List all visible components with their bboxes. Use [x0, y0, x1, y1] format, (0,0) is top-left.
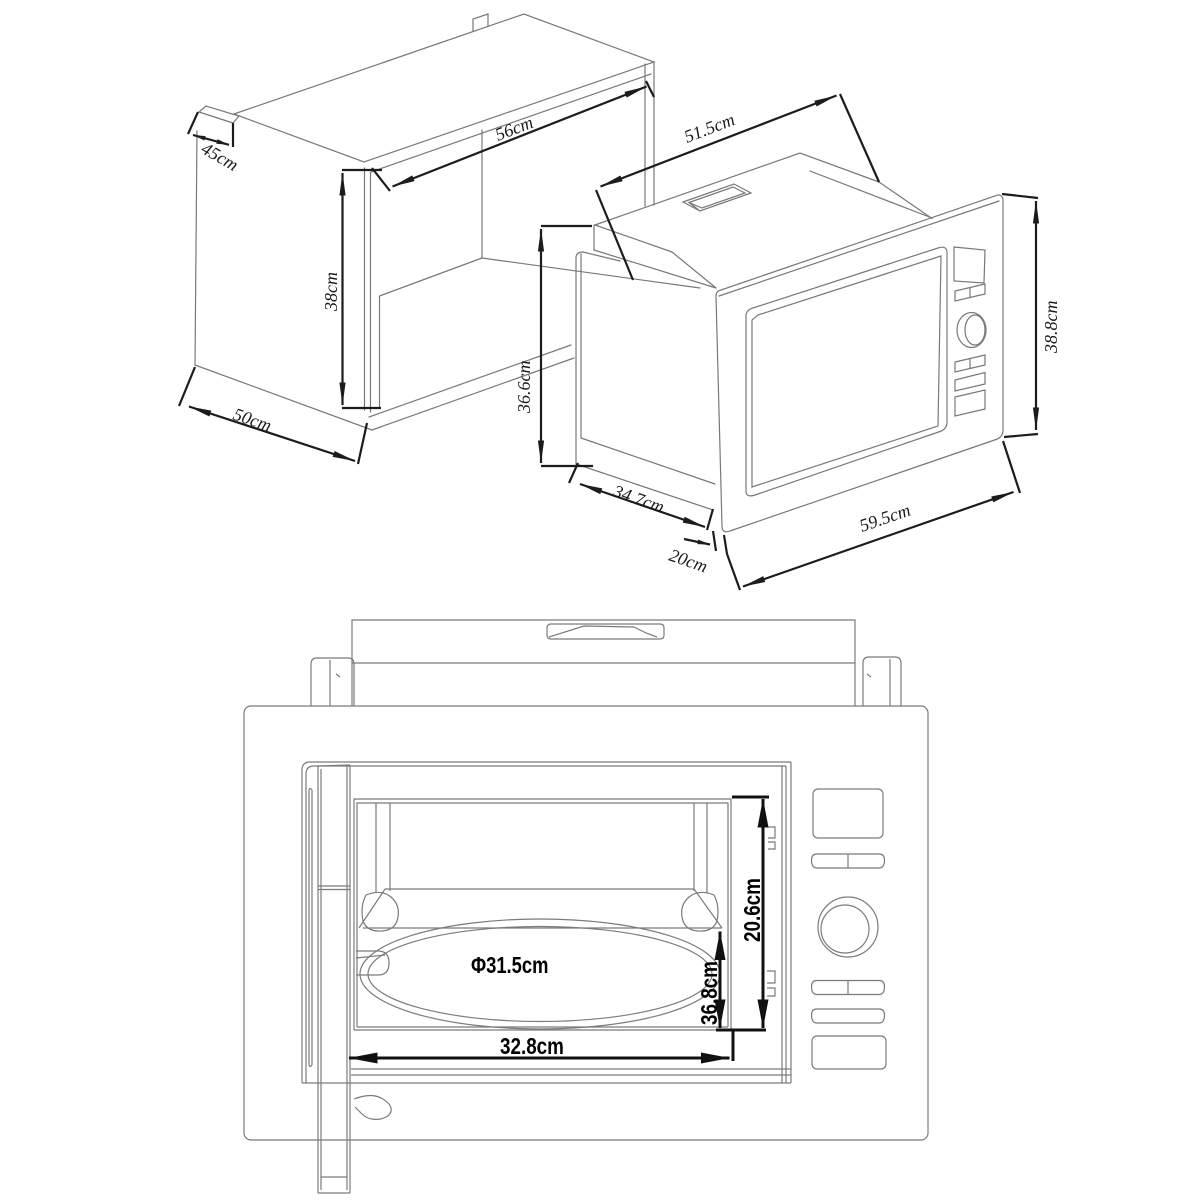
svg-text:50cm: 50cm [231, 404, 274, 436]
svg-text:Φ31.5cm: Φ31.5cm [471, 953, 548, 978]
svg-text:20.6cm: 20.6cm [740, 878, 765, 942]
svg-text:45cm: 45cm [198, 138, 242, 175]
svg-text:56cm: 56cm [492, 112, 536, 145]
svg-text:36.6cm: 36.6cm [514, 361, 534, 415]
svg-text:32.8cm: 32.8cm [500, 1034, 564, 1059]
svg-text:38cm: 38cm [321, 272, 341, 312]
svg-text:36.8cm: 36.8cm [697, 961, 722, 1025]
svg-text:20cm: 20cm [667, 545, 710, 577]
svg-text:38.8cm: 38.8cm [1041, 301, 1061, 355]
svg-text:34.7cm: 34.7cm [610, 481, 667, 517]
svg-text:51.5cm: 51.5cm [681, 109, 737, 146]
